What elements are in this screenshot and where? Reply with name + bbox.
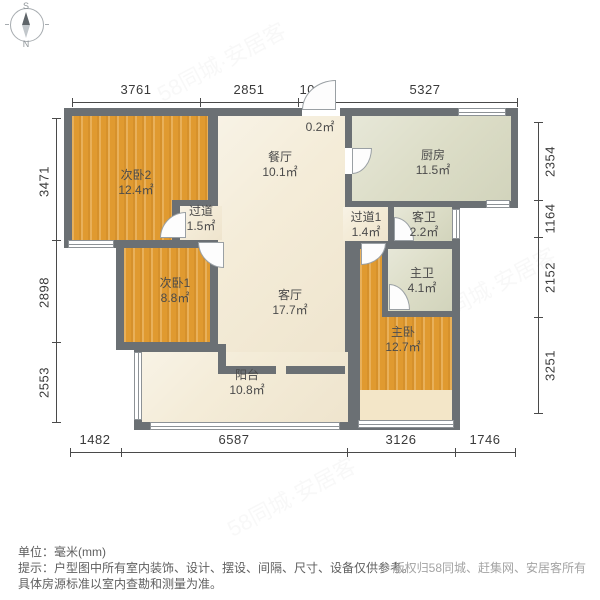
dim-tick [52, 342, 61, 343]
label-kitchen: 厨房 11.5㎡ [393, 148, 473, 178]
dim-label: 2898 [37, 263, 52, 323]
room-name: 餐厅 [240, 150, 320, 165]
dim-tick [455, 448, 456, 457]
dim-tick [70, 448, 71, 457]
dim-label: 2152 [543, 248, 558, 308]
room-area: 1.5㎡ [161, 219, 241, 234]
compass-tick-east [45, 24, 49, 25]
compass-needle-icon [22, 12, 30, 25]
window-balcony-left [134, 352, 142, 420]
room-name: 客厅 [250, 288, 330, 303]
dim-label: 3251 [543, 336, 558, 396]
label-dining: 餐厅 10.1㎡ [240, 150, 320, 180]
room-name: 客卫 [384, 210, 464, 225]
label-bedroom1: 次卧1 8.8㎡ [135, 276, 215, 306]
room-name: 次卧2 [96, 168, 176, 183]
dim-tick [515, 448, 516, 457]
wall-stub [286, 366, 345, 374]
bay-window-area [360, 390, 452, 420]
footer-unit: 单位：毫米(mm) [18, 543, 106, 560]
dim-tick [121, 448, 122, 457]
label-living: 客厅 17.7㎡ [250, 288, 330, 318]
compass-north-label: N [21, 39, 31, 49]
footer-tip-line1: 提示：户型图中所有室内装饰、设计、摆设、间隔、尺寸、设备仅供参考。 [18, 559, 414, 576]
dim-line [70, 452, 515, 453]
compass-needle-icon [22, 25, 30, 38]
window-kitchen-top [458, 108, 506, 116]
dim-tick [534, 122, 543, 123]
dim-label: 3126 [371, 432, 431, 447]
label-master-bath: 主卫 4.1㎡ [382, 266, 462, 296]
dim-label: 3761 [106, 82, 166, 97]
dim-tick [534, 413, 543, 414]
dim-label: 2553 [37, 353, 52, 413]
dim-tick [52, 240, 61, 241]
dim-tick [534, 317, 543, 318]
compass-south-label: S [21, 1, 31, 11]
dim-tick [72, 98, 73, 107]
window-balcony-bottom [150, 422, 340, 430]
label-balcony: 阳台 10.8㎡ [207, 368, 287, 398]
room-name: 次卧1 [135, 276, 215, 291]
dim-label: 2354 [543, 132, 558, 192]
dim-label: 1164 [543, 189, 558, 249]
label-hallway: 过道 1.5㎡ [161, 204, 241, 234]
dim-line [72, 102, 517, 103]
label-guest-bath: 客卫 2.2㎡ [384, 210, 464, 240]
room-area: 10.1㎡ [240, 165, 320, 180]
compass-tick-west [5, 24, 9, 25]
floorplan-canvas: 58同城·安居客 58同城·安居客 58同城·安居客 S N 3761 2851… [0, 0, 600, 600]
room-area: 4.1㎡ [382, 281, 462, 296]
dim-label: 2851 [219, 82, 279, 97]
dim-line [56, 118, 57, 422]
dim-label: 6587 [204, 432, 264, 447]
dim-tick [298, 98, 299, 107]
room-name: 厨房 [393, 148, 473, 163]
dim-line [538, 122, 539, 413]
kitchen-door-opening [345, 148, 352, 174]
dim-tick [517, 98, 518, 107]
room-name: 过道 [161, 204, 241, 219]
dim-tick [52, 422, 61, 423]
window-bedroom2 [68, 240, 114, 248]
watermark: 58同城·安居客 [221, 449, 361, 544]
label-entry-niche: 0.2㎡ [280, 120, 360, 135]
dim-label: 1482 [65, 432, 125, 447]
dim-label: 1746 [455, 432, 515, 447]
dim-label: 3471 [37, 152, 52, 212]
label-bedroom2: 次卧2 12.4㎡ [96, 168, 176, 198]
room-name: 阳台 [207, 368, 287, 383]
footer-tip-line2: 具体房源标准以室内查勘和测量为准。 [18, 575, 222, 592]
room-area: 11.5㎡ [393, 163, 473, 178]
dim-tick [347, 448, 348, 457]
label-master-bedroom: 主卧 12.7㎡ [363, 325, 443, 355]
dim-tick [52, 118, 61, 119]
room-area: 2.2㎡ [384, 225, 464, 240]
room-area: 12.4㎡ [96, 183, 176, 198]
window-bay [358, 420, 454, 428]
room-area: 12.7㎡ [363, 340, 443, 355]
room-area: 17.7㎡ [250, 303, 330, 318]
footer-copyright: © 版权归58同城、赶集网、安居客所有 [380, 559, 586, 576]
room-area: 10.8㎡ [207, 383, 287, 398]
room-name: 主卫 [382, 266, 462, 281]
window-kitchen-bottom [486, 200, 510, 208]
room-name: 主卧 [363, 325, 443, 340]
dim-label: 5327 [395, 82, 455, 97]
room-area: 8.8㎡ [135, 291, 215, 306]
dim-tick [200, 98, 201, 107]
room-bedroom2 [72, 200, 172, 240]
room-area: 0.2㎡ [280, 120, 360, 135]
